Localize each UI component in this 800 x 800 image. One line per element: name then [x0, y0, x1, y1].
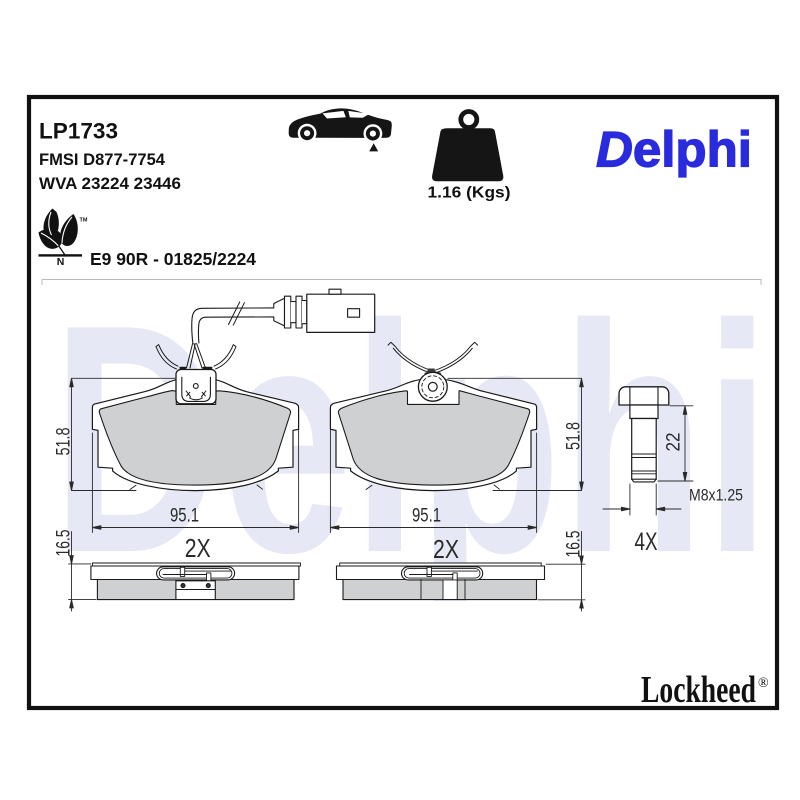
svg-text:2X: 2X	[433, 534, 459, 564]
svg-text:Lockheed: Lockheed	[641, 669, 756, 711]
svg-text:2X: 2X	[185, 533, 211, 563]
svg-text:16.5: 16.5	[53, 529, 75, 556]
svg-text:M8x1.25: M8x1.25	[689, 486, 743, 505]
svg-text:4X: 4X	[635, 528, 658, 556]
svg-text:E9 90R - 01825/2224: E9 90R - 01825/2224	[90, 249, 256, 269]
svg-text:51.8: 51.8	[563, 422, 585, 450]
svg-text:51.8: 51.8	[53, 428, 75, 456]
svg-text:95.1: 95.1	[170, 505, 199, 527]
svg-text:22: 22	[663, 433, 685, 452]
svg-text:LP1733: LP1733	[39, 118, 118, 143]
svg-text:WVA 23224 23446: WVA 23224 23446	[39, 174, 181, 193]
svg-text:16.5: 16.5	[563, 530, 585, 557]
svg-text:FMSI D877-7754: FMSI D877-7754	[39, 150, 166, 169]
svg-text:95.1: 95.1	[412, 505, 441, 527]
svg-text:1.16 (Kgs): 1.16 (Kgs)	[428, 185, 511, 202]
svg-text:®: ®	[758, 676, 769, 691]
svg-text:Delphi: Delphi	[596, 122, 752, 178]
svg-text:TM: TM	[80, 218, 88, 224]
svg-text:N: N	[57, 256, 65, 268]
